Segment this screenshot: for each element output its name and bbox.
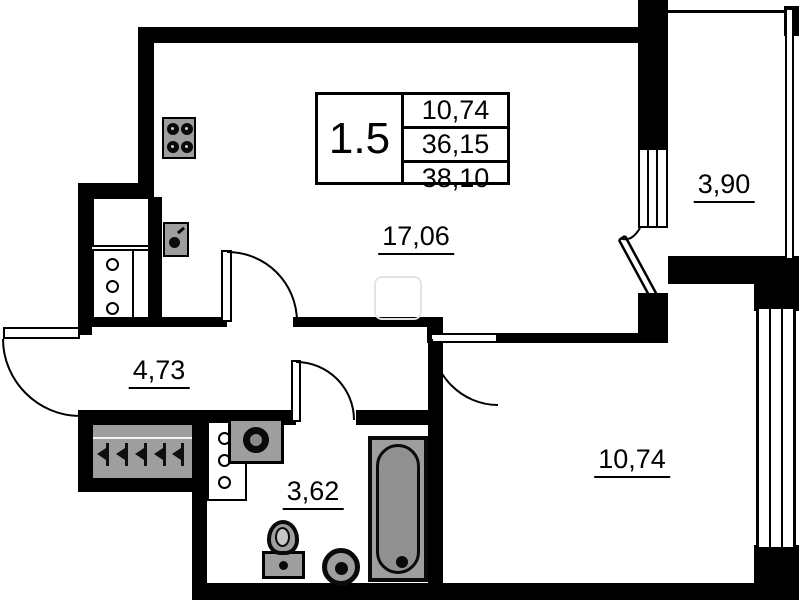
vent-circle-icon — [106, 302, 119, 315]
title-block: 1.5 10,74 36,15 38,10 — [315, 92, 510, 185]
balcony-door-arc — [622, 228, 640, 239]
balcony-edge-right — [785, 10, 794, 258]
wall-balcony-pier — [638, 293, 668, 343]
area-value-row: 38,10 — [404, 160, 507, 194]
room-label-balcony: 3,90 — [694, 169, 755, 203]
wardrobe-rail — [93, 437, 192, 439]
toilet-button-icon — [279, 561, 288, 570]
hanger-icon — [135, 442, 152, 468]
hanger-icon — [172, 442, 189, 468]
living-door-arc — [227, 252, 297, 322]
balcony-window — [638, 148, 668, 228]
bathroom-door-leaf — [291, 360, 301, 422]
room-label-hallway: 4,73 — [129, 355, 190, 389]
wall-bathroom-left — [192, 410, 207, 583]
stove-icon — [162, 117, 196, 159]
toilet-bowl-icon — [267, 520, 299, 555]
bathtub-inner — [376, 444, 420, 574]
hanger-icon — [154, 442, 171, 468]
bathroom-door-arc — [296, 362, 354, 420]
cabinet-column-icon — [132, 249, 150, 319]
entrance-door-arc — [3, 339, 80, 416]
washbasin-bowl-icon — [243, 427, 269, 453]
washbasin-icon — [228, 418, 284, 464]
area-value-row: 10,74 — [404, 95, 507, 126]
wall-left-upper — [138, 27, 154, 185]
wall-kitchen-interior — [148, 197, 162, 327]
hanger-icon — [97, 442, 114, 468]
unit-type-label: 1.5 — [318, 95, 404, 182]
wall-bedroom-top — [498, 333, 638, 343]
room-label-bedroom: 10,74 — [594, 444, 670, 478]
window-pane-line — [656, 150, 658, 226]
vent-circle-icon — [106, 280, 119, 293]
window-pane-line — [769, 309, 771, 547]
wall-balcony-partition — [638, 0, 668, 150]
toilet-bowl-inner — [275, 527, 290, 547]
sink-faucet-icon — [177, 227, 185, 234]
window-pane-line — [781, 309, 783, 547]
wall-window-bottom-pier — [754, 545, 799, 585]
room-label-living: 17,06 — [378, 221, 454, 255]
toilet-tank-icon — [262, 551, 305, 579]
floor-plan: 1.5 10,74 36,15 38,10 17,06 3,90 4,73 3,… — [0, 0, 799, 600]
vent-circle-icon — [106, 258, 119, 271]
kitchen-counter-icon — [92, 197, 150, 247]
bathtub-icon — [368, 436, 428, 582]
bathtub-drain-icon — [396, 556, 408, 568]
room-label-bathroom: 3,62 — [283, 476, 344, 510]
hanger-icon — [116, 442, 133, 468]
vent-circle-icon — [218, 476, 231, 489]
wardrobe-icon — [93, 425, 192, 478]
bedroom-door-leaf — [430, 333, 498, 343]
washing-machine-icon — [322, 548, 360, 586]
wall-balcony-bottom — [668, 256, 799, 284]
wall-left-lower — [78, 183, 92, 335]
title-block-values: 10,74 36,15 38,10 — [404, 95, 507, 182]
kitchen-sink-icon — [163, 222, 189, 257]
area-value-row: 36,15 — [404, 126, 507, 160]
wall-top — [138, 27, 643, 43]
wall-wardrobe-bottom — [78, 478, 207, 492]
living-door-leaf — [221, 250, 232, 322]
sink-basin-icon — [169, 237, 180, 248]
balcony-edge-top — [668, 10, 786, 13]
wall-bathroom-right — [428, 343, 443, 583]
wall-bottom — [192, 583, 799, 600]
wall-window-top-pier — [754, 283, 799, 311]
window-pane-line — [647, 150, 649, 226]
washing-machine-drum — [335, 562, 348, 575]
balcony-door-leaf — [619, 236, 657, 299]
entrance-door-leaf — [3, 327, 80, 339]
ghost-furniture-outline — [374, 276, 422, 320]
bedroom-window — [756, 309, 796, 547]
